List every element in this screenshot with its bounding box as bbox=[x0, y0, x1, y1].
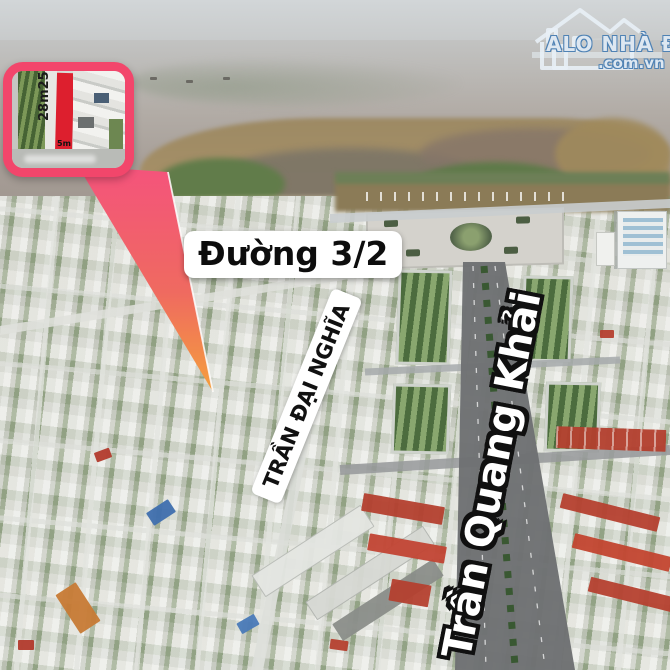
street-label-duong-3-2: Đường 3/2 bbox=[184, 231, 402, 278]
logo-brand-text: ALO NHÀ ĐẤT bbox=[546, 32, 670, 56]
lot-frontage-label: 5m bbox=[57, 139, 71, 148]
callout-arrow bbox=[78, 166, 213, 392]
plot-callout-inset: 28m25 5m bbox=[3, 62, 134, 177]
red-roof bbox=[18, 640, 34, 650]
shophouse-red-roofs bbox=[556, 426, 667, 452]
logo-site-text: .com.vn bbox=[598, 54, 665, 72]
coastal-road bbox=[330, 199, 670, 223]
watermark-logo: ALO NHÀ ĐẤT .com.vn bbox=[528, 2, 668, 82]
lot-depth-label: 28m25 bbox=[20, 107, 70, 121]
inset-dark-roof bbox=[78, 117, 94, 128]
inset-trees bbox=[109, 119, 123, 149]
red-roof bbox=[600, 330, 614, 338]
inset-blue-roof bbox=[94, 93, 109, 103]
inset-road-watermark-blur bbox=[24, 155, 96, 163]
aerial-map-scene: 28m25 5m Đường 3/2 TRẦN ĐẠI NGHĨA Trần Q… bbox=[0, 0, 670, 670]
